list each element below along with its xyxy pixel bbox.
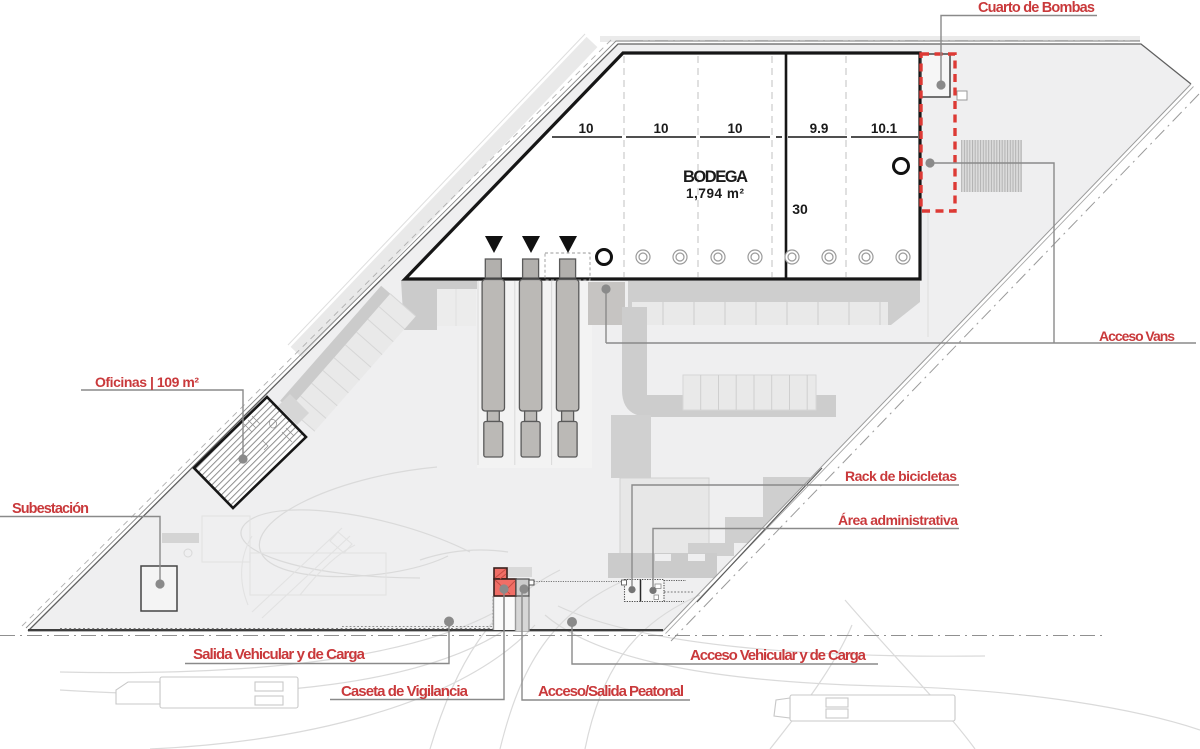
svg-text:Caseta de Vigilancia: Caseta de Vigilancia [341,683,469,700]
svg-text:10.1: 10.1 [871,121,898,136]
svg-text:Acceso Vehicular y de Carga: Acceso Vehicular y de Carga [690,647,867,664]
svg-text:Salida Vehicular y de Carga: Salida Vehicular y de Carga [193,646,366,663]
svg-text:Área administrativa: Área administrativa [838,512,958,528]
svg-text:Acceso Vans: Acceso Vans [1099,328,1175,344]
svg-text:BODEGA: BODEGA [683,168,748,186]
svg-text:Cuarto de Bombas: Cuarto de Bombas [978,0,1095,16]
svg-text:10: 10 [653,121,668,136]
svg-text:30: 30 [792,201,808,217]
svg-text:Subestación: Subestación [12,501,89,517]
svg-text:Acceso/Salida Peatonal: Acceso/Salida Peatonal [538,683,684,700]
svg-text:9.9: 9.9 [810,121,829,136]
svg-text:1,794 m²: 1,794 m² [686,186,745,201]
svg-text:10: 10 [578,121,593,136]
svg-text:Oficinas | 109 m²: Oficinas | 109 m² [95,374,199,390]
svg-text:10: 10 [727,121,742,136]
svg-text:Rack de bicicletas: Rack de bicicletas [845,468,957,484]
